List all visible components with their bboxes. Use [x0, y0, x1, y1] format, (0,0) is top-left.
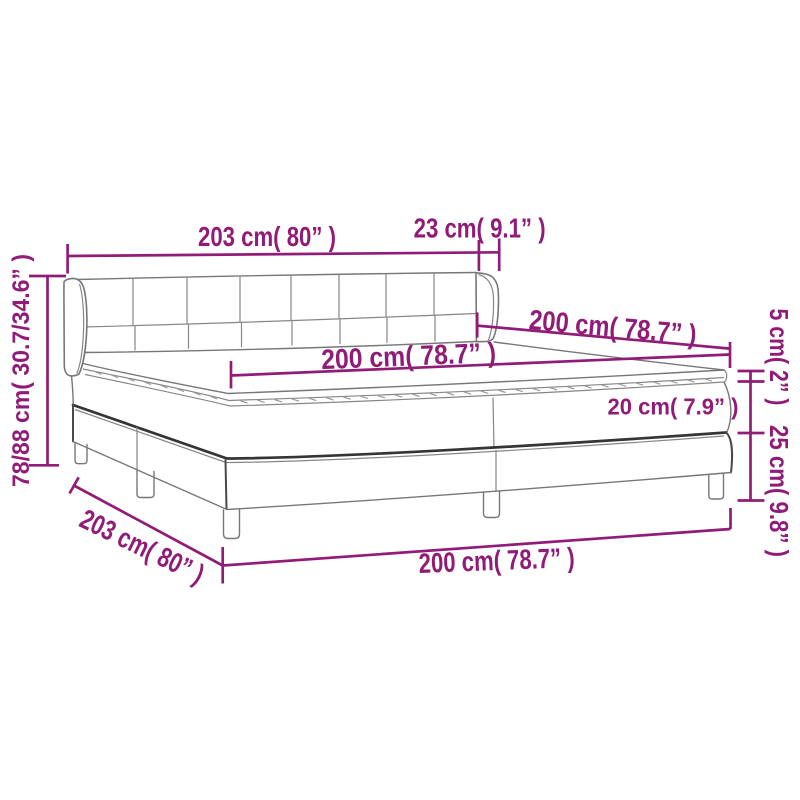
svg-text:20 cm( 7.9” ): 20 cm( 7.9” ) — [608, 394, 739, 420]
svg-text:5 cm( 2” ): 5 cm( 2” ) — [764, 309, 794, 406]
svg-text:78/88 cm( 30.7/34.6” ): 78/88 cm( 30.7/34.6” ) — [8, 254, 35, 487]
svg-text:23 cm( 9.1” ): 23 cm( 9.1” ) — [414, 213, 546, 244]
svg-text:25 cm( 9.8” ): 25 cm( 9.8” ) — [764, 425, 794, 557]
svg-text:203 cm( 80” ): 203 cm( 80” ) — [198, 221, 336, 252]
svg-text:200 cm( 78.7” ): 200 cm( 78.7” ) — [418, 542, 575, 579]
